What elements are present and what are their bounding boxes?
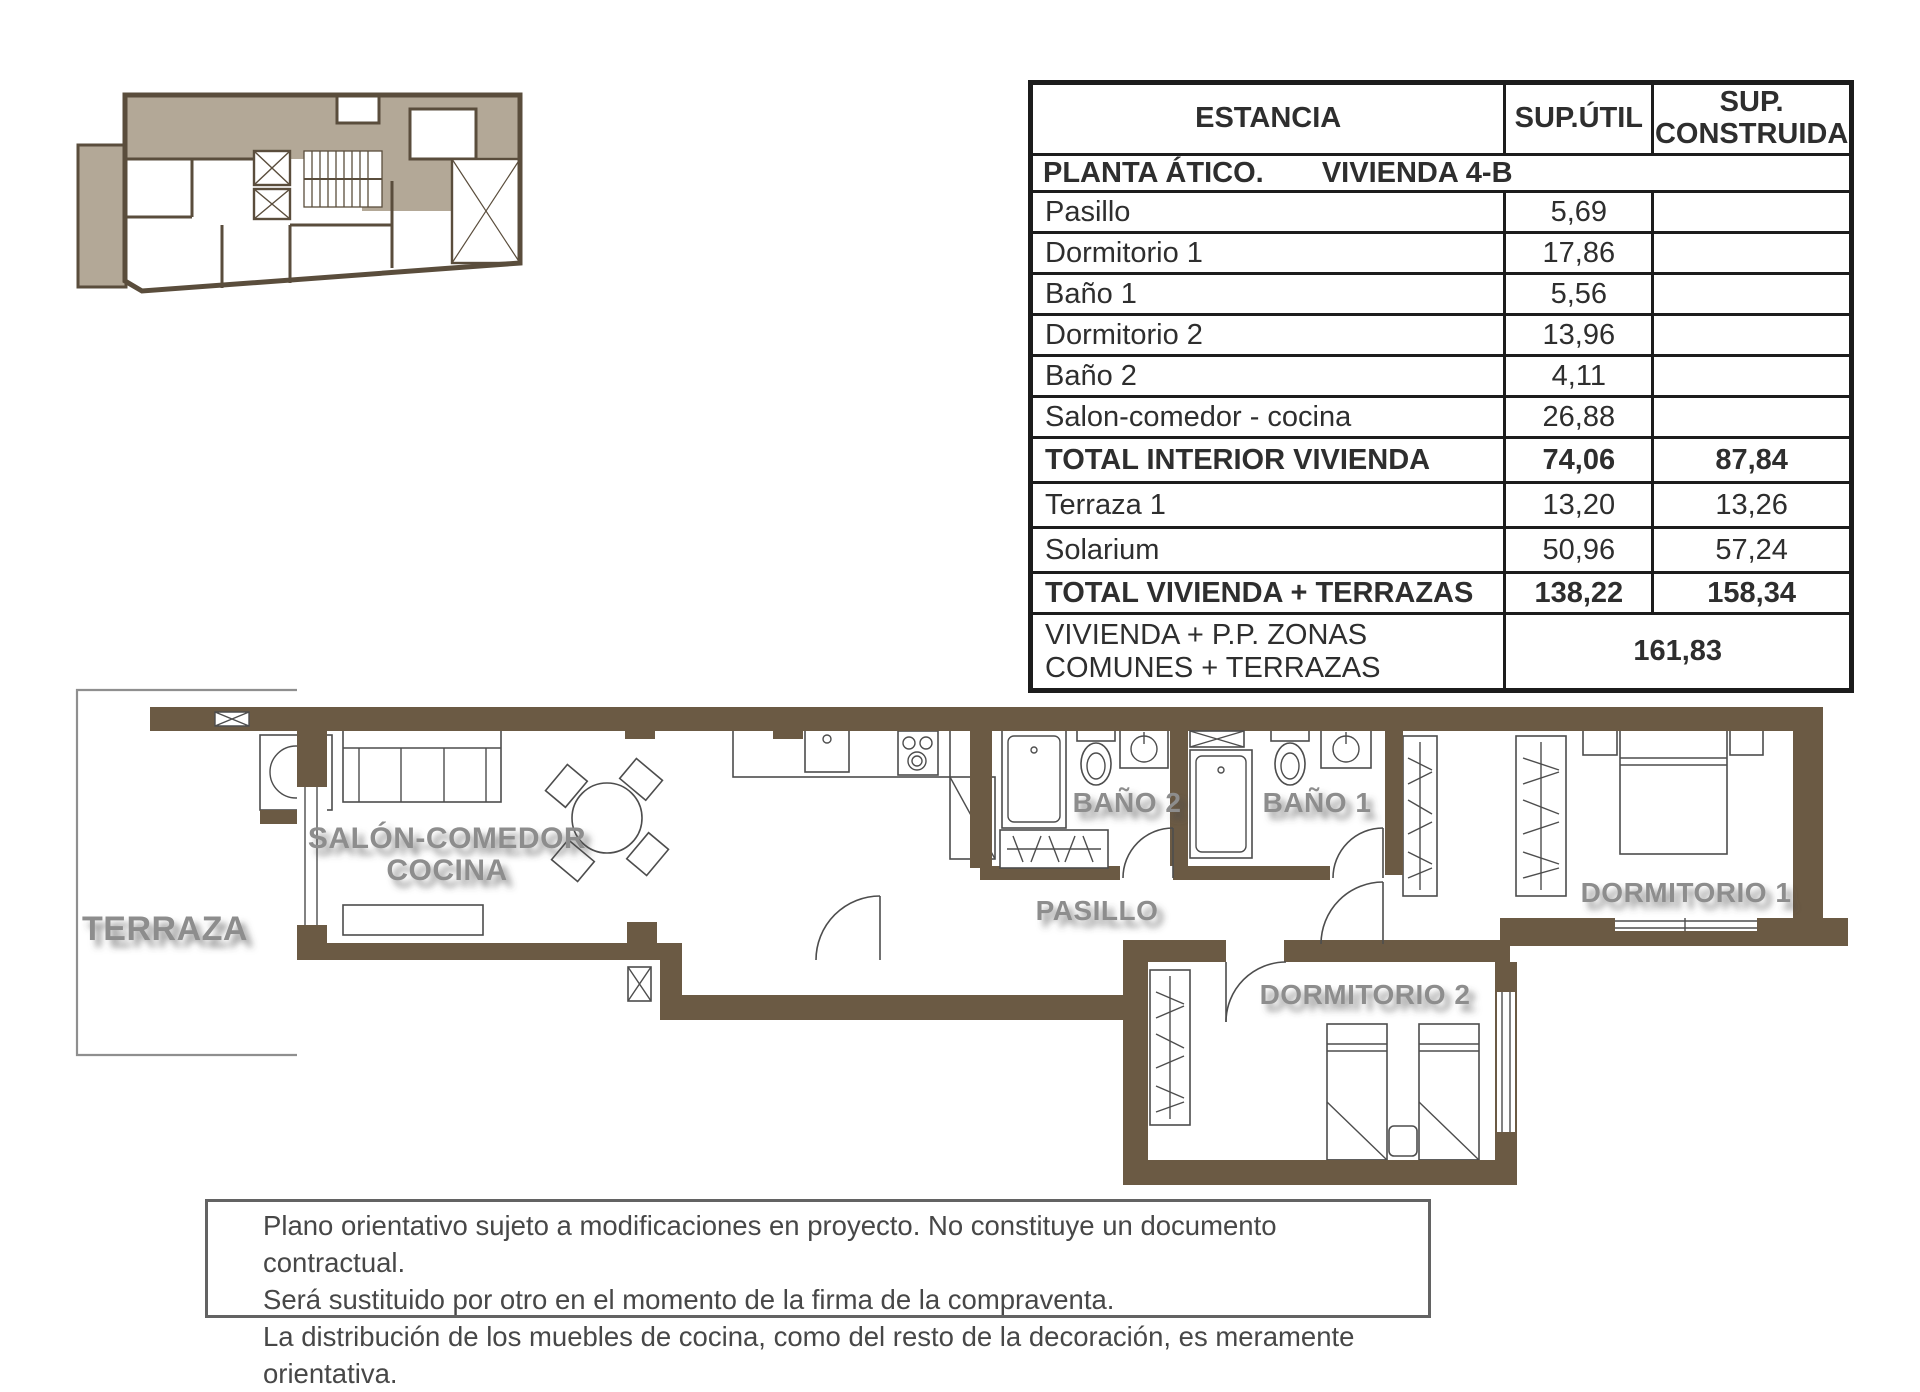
label-bano2: BAÑO 2 [1073,787,1182,818]
vent-shaft [1190,731,1244,747]
label-salon-line2: COCINA [386,854,507,887]
row-construida [1653,356,1852,397]
label-salon-line1: SALÓN-COMEDOR [308,821,586,855]
section-title-vivienda: VIVIENDA 4-B [1322,157,1513,189]
door-arc [1321,882,1383,944]
key-plan [62,85,542,300]
wardrobe [1150,970,1190,1125]
keyplan-elevators [254,151,290,219]
table-row: Baño 1 5,56 [1031,274,1852,315]
sink-icon [1321,730,1371,768]
row-util: 74,06 [1505,438,1653,483]
table-row: Salon-comedor - cocina 26,88 [1031,397,1852,438]
row-label: Dormitorio 2 [1031,315,1505,356]
row-label: Solarium [1031,528,1505,573]
disclaimer-box: Plano orientativo sujeto a modificacione… [205,1199,1431,1318]
nightstand [1389,1126,1417,1156]
keyplan-solarium-void [452,159,520,263]
door-arc [1333,828,1383,878]
table-row: Dormitorio 1 17,86 [1031,233,1852,274]
table-row-total-interior: TOTAL INTERIOR VIVIENDA 74,06 87,84 [1031,438,1852,483]
table-header-row: ESTANCIA SUP.ÚTIL SUP. CONSTRUIDA [1031,83,1852,155]
wardrobe [1516,736,1566,896]
section-title: PLANTA ÁTICO. VIVIENDA 4-B [1031,155,1852,192]
row-label: Baño 1 [1031,274,1505,315]
row-util: 4,11 [1505,356,1653,397]
terrace-slider-window [297,787,327,925]
row-construida [1653,397,1852,438]
disclaimer-line: Será sustituido por otro en el momento d… [263,1281,1418,1318]
row-label: Dormitorio 1 [1031,233,1505,274]
row-construida [1653,274,1852,315]
sink-icon [1120,730,1168,768]
shower-icon [1002,730,1066,828]
label-dormitorio2: DORMITORIO 2 [1260,979,1471,1010]
table-row: Pasillo 5,69 [1031,192,1852,233]
row-construida: 57,24 [1653,528,1852,573]
header-estancia: ESTANCIA [1031,83,1505,155]
header-sup-util: SUP.ÚTIL [1505,83,1653,155]
row-construida [1653,192,1852,233]
bed-single [1327,1024,1387,1160]
label-terraza: TERRAZA [82,910,248,948]
entry-pillar [628,967,651,1001]
table-row: Dormitorio 2 13,96 [1031,315,1852,356]
row-construida: 13,26 [1653,483,1852,528]
shower-icon [1190,750,1252,858]
coat-closet [1000,830,1108,868]
row-construida [1653,315,1852,356]
table-row: Terraza 1 13,20 13,26 [1031,483,1852,528]
disclaimer-line: La distribución de los muebles de cocina… [263,1318,1418,1392]
row-label: Salon-comedor - cocina [1031,397,1505,438]
keyplan-stairs [304,151,382,207]
row-util: 17,86 [1505,233,1653,274]
section-title-planta: PLANTA ÁTICO. [1043,157,1264,189]
row-label: Pasillo [1031,192,1505,233]
kitchen-counter [733,725,995,859]
door-arc [814,896,880,960]
sofa [343,730,501,802]
door-arc [1123,828,1173,878]
table-row: Solarium 50,96 57,24 [1031,528,1852,573]
window [1497,992,1515,1132]
row-label: TOTAL INTERIOR VIVIENDA [1031,438,1505,483]
sideboard [343,905,483,935]
row-label: Baño 2 [1031,356,1505,397]
row-construida [1653,233,1852,274]
row-util: 50,96 [1505,528,1653,573]
main-floor-plan: TERRAZA SALÓN-COMEDOR COCINA BAÑO 2 BAÑO… [65,572,1855,1197]
bed-single [1419,1024,1479,1160]
disclaimer-line: Plano orientativo sujeto a modificacione… [263,1207,1418,1281]
row-util: 13,20 [1505,483,1653,528]
window [1615,918,1757,931]
stove-icon [898,731,938,775]
toilet-icon [1077,728,1115,785]
header-sup-construida: SUP. CONSTRUIDA [1653,83,1852,155]
row-construida: 87,84 [1653,438,1852,483]
table-row: Baño 2 4,11 [1031,356,1852,397]
label-pasillo: PASILLO [1036,895,1159,926]
label-bano1: BAÑO 1 [1263,787,1372,818]
wardrobe [1403,736,1437,896]
table-section-row: PLANTA ÁTICO. VIVIENDA 4-B [1031,155,1852,192]
toilet-icon [1271,728,1309,785]
row-util: 5,56 [1505,274,1653,315]
row-util: 5,69 [1505,192,1653,233]
bed-double [1583,728,1763,854]
row-util: 26,88 [1505,397,1653,438]
dining-table [546,759,669,882]
label-dormitorio1: DORMITORIO 1 [1581,877,1792,908]
row-util: 13,96 [1505,315,1653,356]
window [215,712,249,726]
row-label: Terraza 1 [1031,483,1505,528]
